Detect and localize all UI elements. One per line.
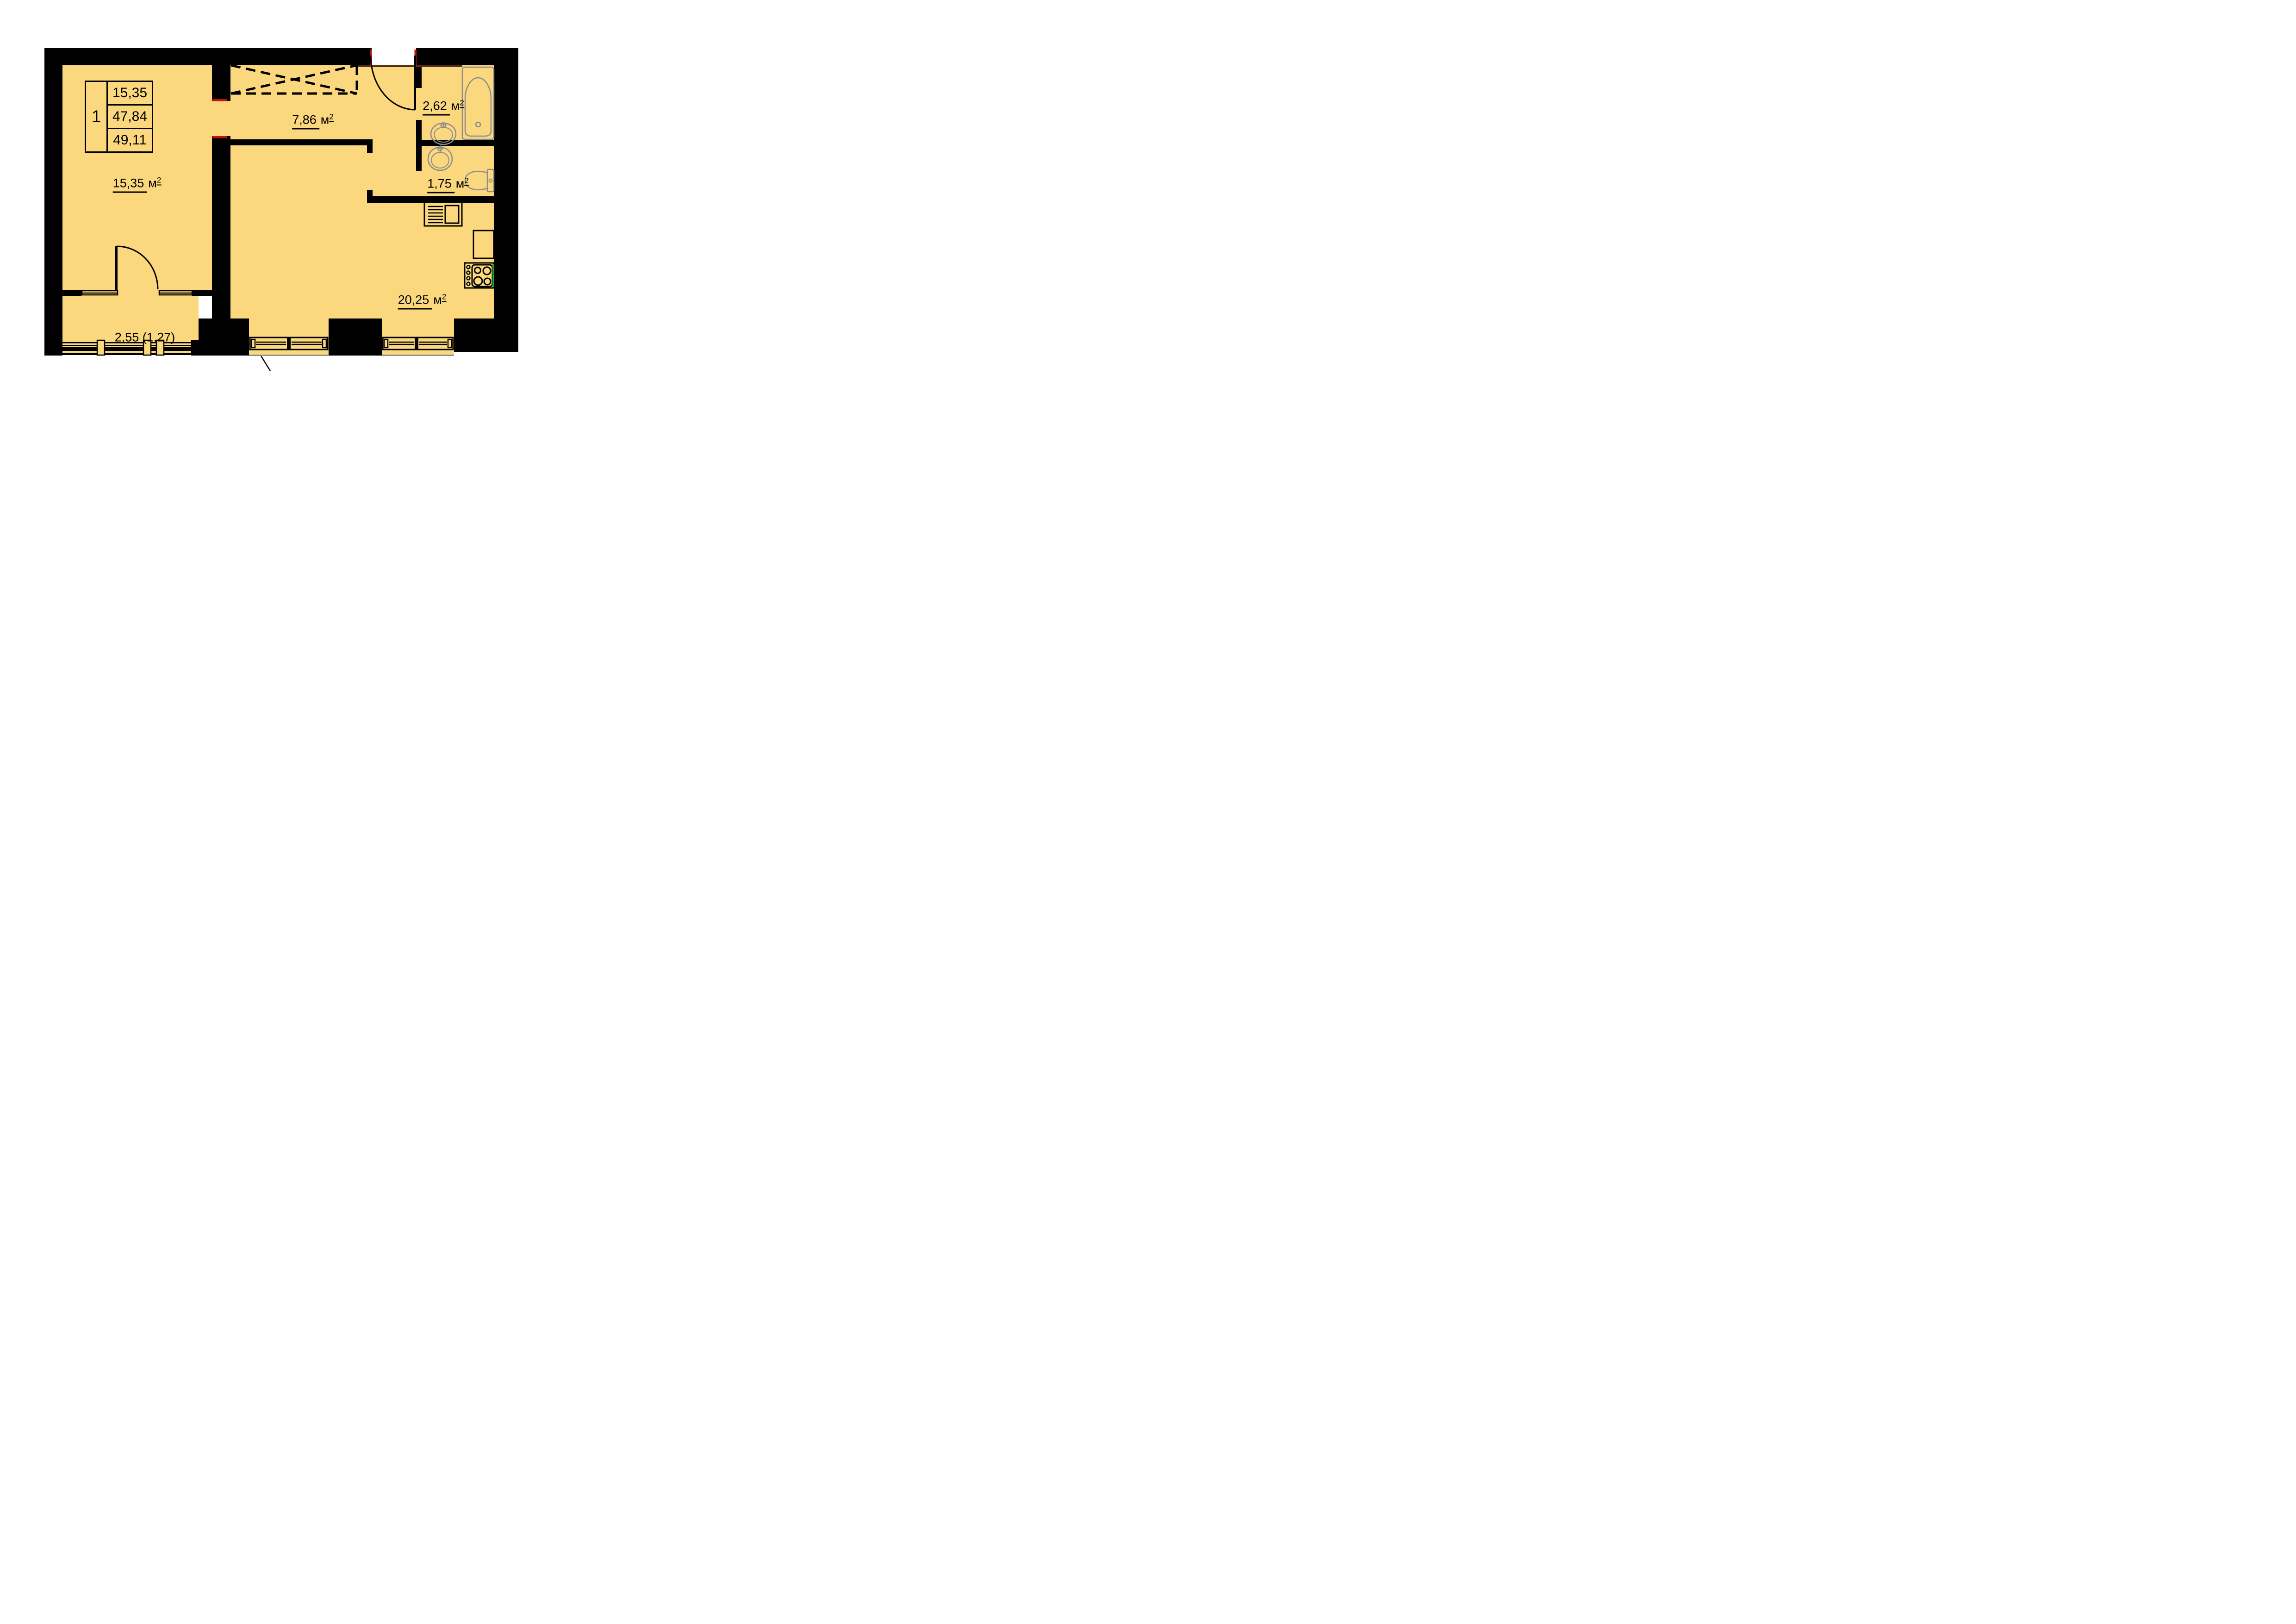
bay2-sill-edge	[382, 355, 454, 356]
legend-area-total: 49,11	[108, 128, 152, 151]
legend-area-living: 15,35	[108, 82, 152, 104]
legend-area-apartment: 47,84	[108, 104, 152, 128]
stove-edge-green-line	[492, 264, 494, 287]
wall-kitchen-south-a	[199, 319, 249, 356]
label-bathroom-area: 2,62м2	[423, 99, 464, 113]
wall-stub-kitchen-entry-bottom	[367, 190, 373, 203]
living-door-jamb-top	[212, 99, 227, 101]
wall-balcony-partition-left	[62, 290, 81, 296]
wall-living-hall-upper	[212, 65, 230, 101]
section-diagonal	[261, 356, 270, 371]
wall-top-left	[44, 48, 372, 65]
floor-plan: 1 15,35 47,84 49,11 15,35м2 7,86м2 2,62м…	[0, 0, 574, 406]
glazing-post-1	[97, 340, 105, 355]
legend-table: 1 15,35 47,84 49,11	[85, 81, 153, 153]
floor-plan-drawing	[0, 0, 574, 406]
wall-hall-south	[227, 139, 373, 145]
wall-right	[494, 48, 518, 319]
legend-unit-number: 1	[86, 82, 108, 151]
wall-bathroom-west-upper	[416, 65, 422, 88]
glazing-bottom-edge	[62, 353, 199, 355]
balcony-door-leaf	[115, 246, 118, 290]
label-wc-area: 1,75м2	[427, 177, 469, 191]
label-hallway-area: 7,86м2	[292, 113, 334, 127]
glazing-band	[62, 347, 199, 351]
wall-balcony-partition-right	[192, 290, 212, 296]
entrance-door-leaf	[414, 56, 416, 110]
bay1-mullion	[287, 337, 291, 350]
bay1-sill-edge	[249, 355, 329, 356]
label-kitchen-area: 20,25м2	[398, 293, 447, 307]
living-door-jamb-bottom	[212, 136, 227, 138]
wall-kitchen-south-pillar	[329, 319, 382, 356]
living-door-opening-floor	[212, 101, 230, 136]
wall-living-hall-lower	[212, 136, 230, 319]
wall-left	[44, 48, 62, 356]
wall-bathroom-wc-divider	[416, 140, 494, 146]
legend-areas: 15,35 47,84 49,11	[108, 82, 152, 151]
label-living-room-area: 15,35м2	[113, 176, 162, 191]
wall-stub-kitchen-entry-top	[367, 145, 373, 153]
bay2-mullion	[415, 337, 418, 350]
wall-kitchen-south-c	[454, 319, 518, 352]
label-balcony-area: 2,55 (1,27)	[115, 331, 175, 345]
